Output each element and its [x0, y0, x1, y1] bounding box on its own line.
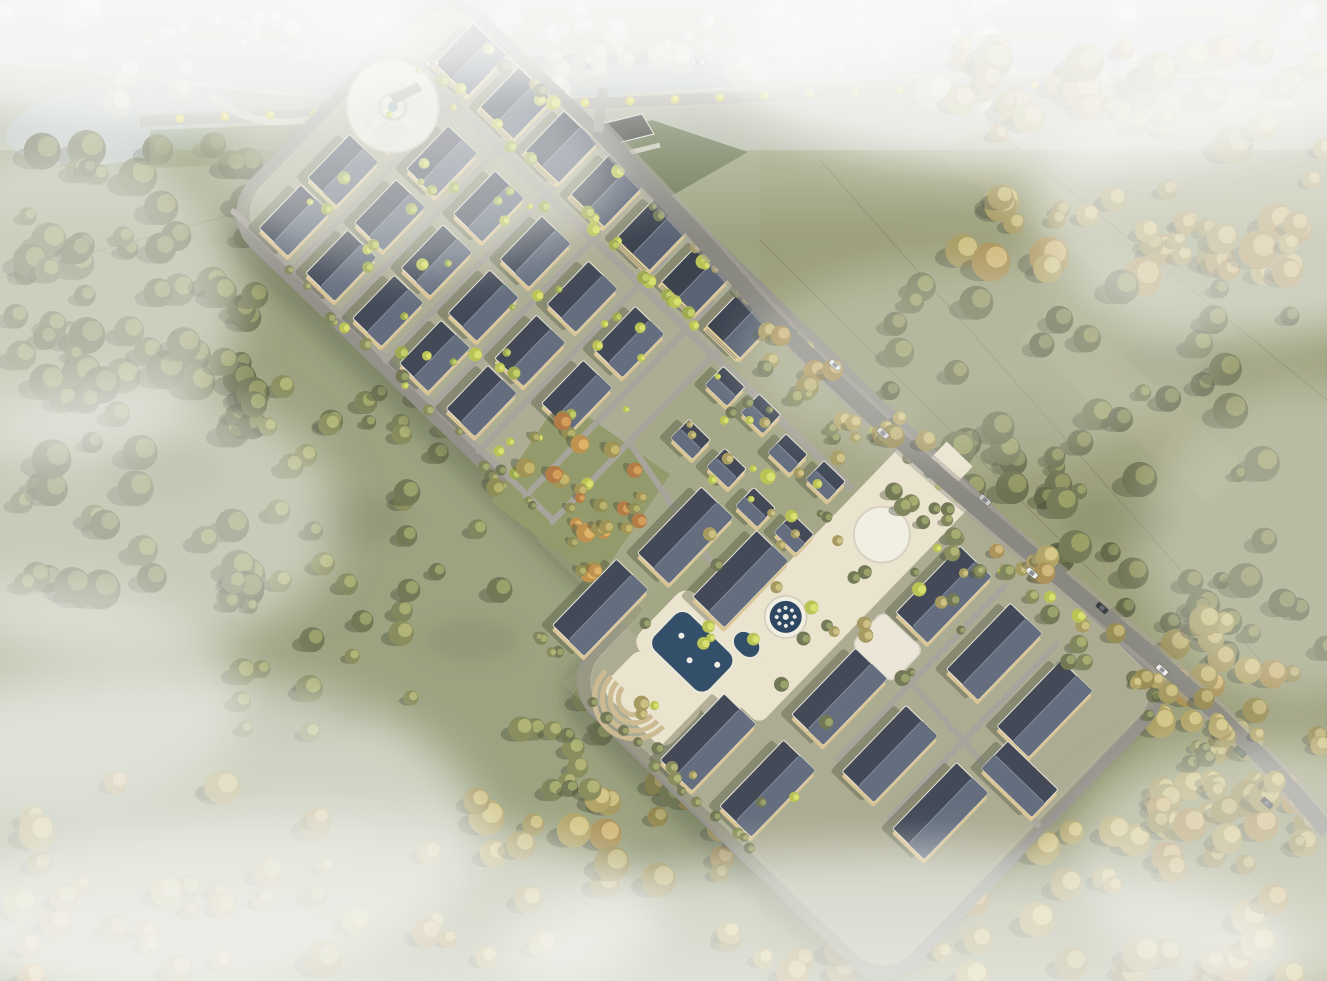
aerial-development-render [0, 0, 1327, 981]
scene-svg [0, 0, 1327, 981]
fog-layer [0, 0, 1327, 981]
